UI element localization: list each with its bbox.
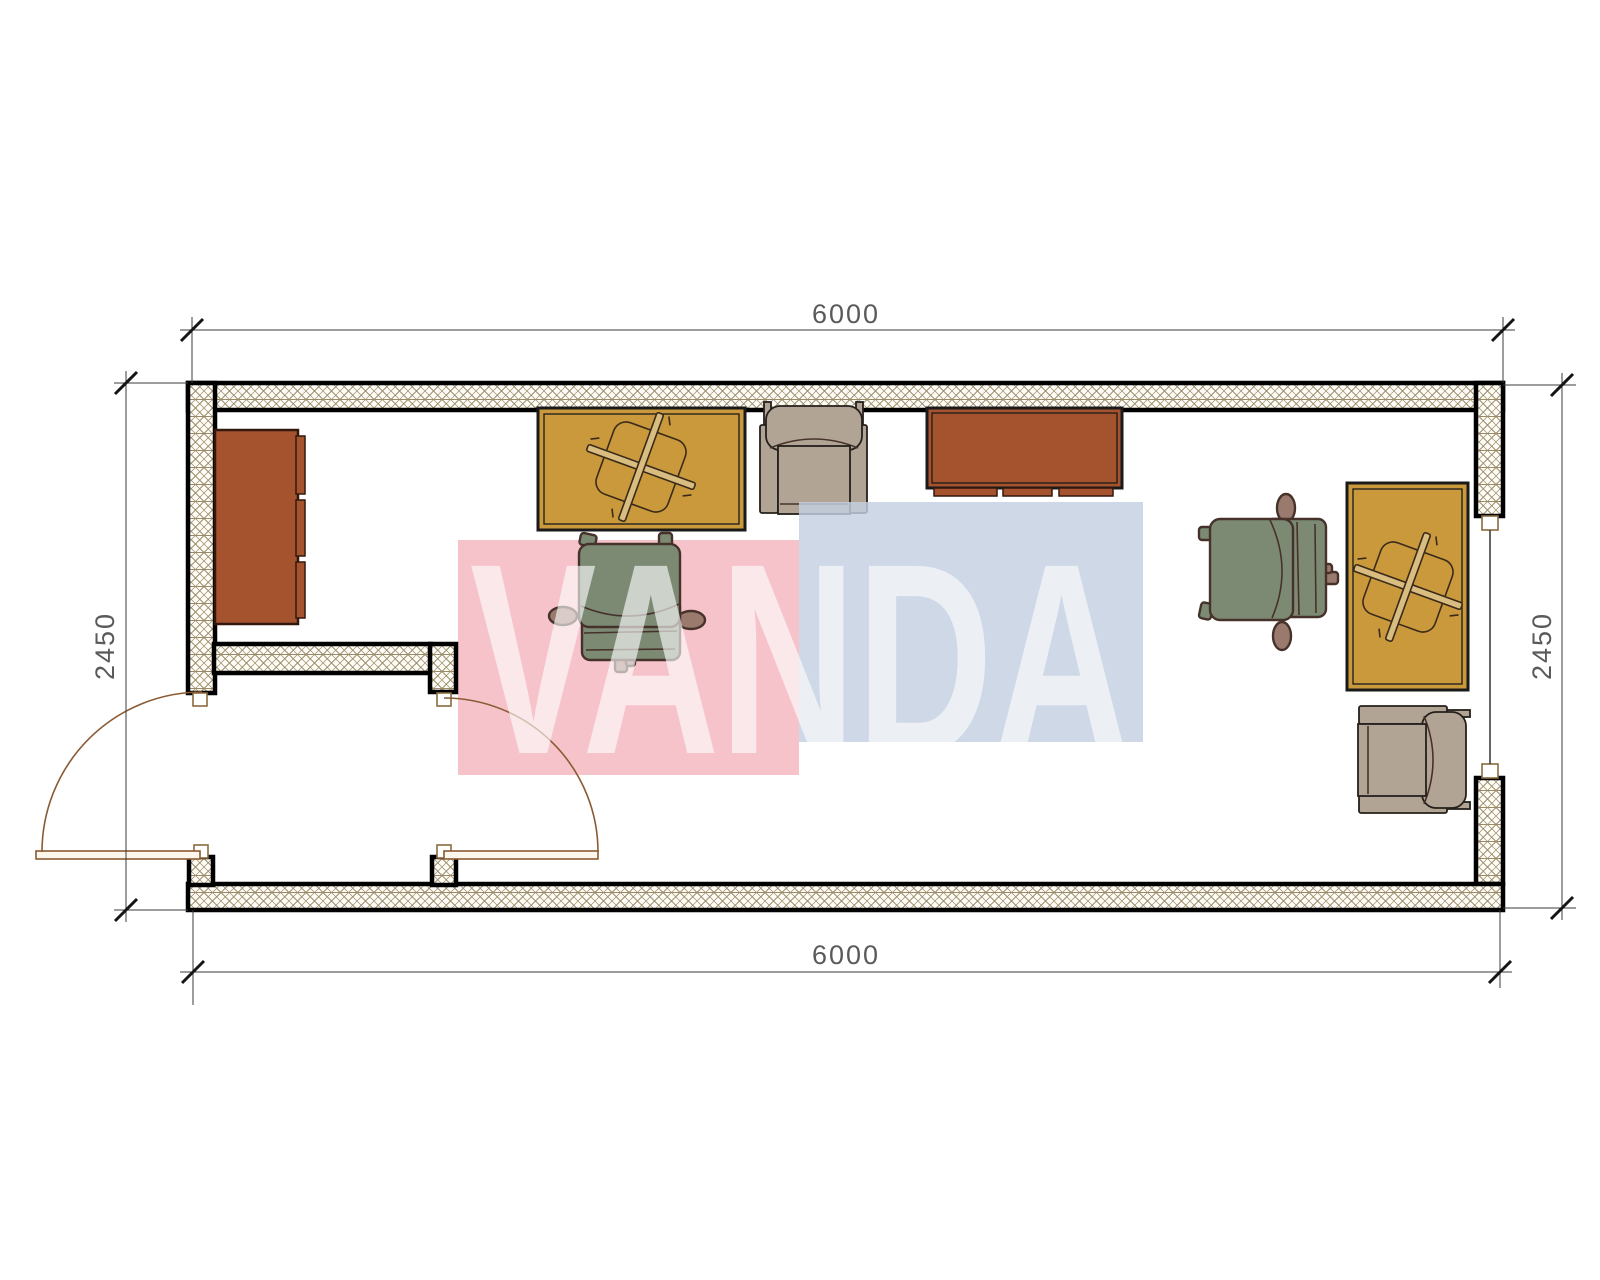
door-frame-square [437,693,451,706]
wall-stub-entry-right [432,857,456,885]
wall-vestibule-jamb [430,644,456,692]
watermark-text: VANDA [470,507,1130,811]
entry-door [36,692,202,859]
door-leaf [444,851,598,859]
door-frame-square [193,693,207,706]
wall-bottom [188,884,1503,910]
window-frame-square [1482,764,1498,778]
armchair-bottom-right [1358,706,1470,813]
dimension-top: 6000 [180,299,1515,383]
door-swing-arc [42,692,202,852]
cabinet-left [215,430,305,624]
wall-right-lower [1476,778,1503,884]
dimension-bottom: 6000 [180,910,1512,1005]
dim-label-right: 2450 [1527,612,1557,680]
wall-stub-entry-left [189,857,213,885]
armchair-top [760,402,867,514]
desk-right [1335,483,1481,690]
floor-plan-canvas: VANDA 6000 6000 2450 2450 [0,0,1600,1280]
dimension-left: 2450 [90,371,188,922]
desk-center [927,408,1122,496]
door-leaf [36,851,200,859]
dim-label-left: 2450 [90,612,120,680]
wall-vestibule-partition [214,644,431,673]
window-right [1482,516,1498,778]
dim-label-bottom: 6000 [812,940,880,970]
floor-plan-drawing: VANDA 6000 6000 2450 2450 [0,0,1600,1280]
dim-label-top: 6000 [812,299,880,329]
dimension-right: 2450 [1503,373,1576,920]
wall-right-upper [1476,383,1503,516]
office-chair-right [1198,494,1338,650]
window-frame-square [1482,516,1498,530]
wall-left [188,383,215,693]
